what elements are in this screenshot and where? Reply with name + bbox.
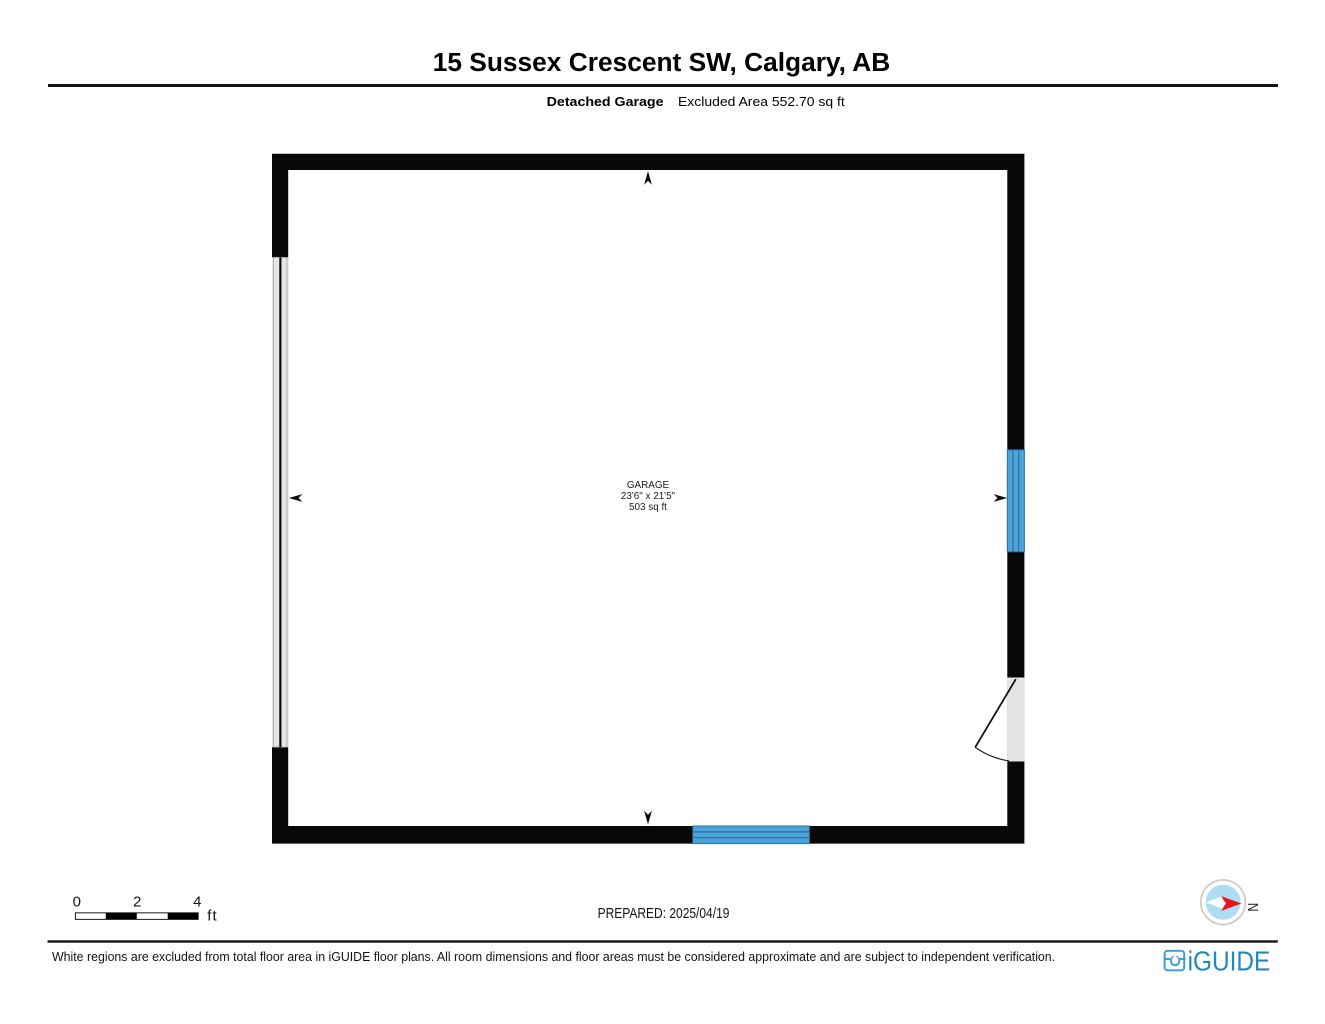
svg-text:0: 0 (73, 894, 81, 911)
svg-text:iGUIDE: iGUIDE (1188, 945, 1271, 977)
svg-text:N: N (1245, 903, 1261, 912)
